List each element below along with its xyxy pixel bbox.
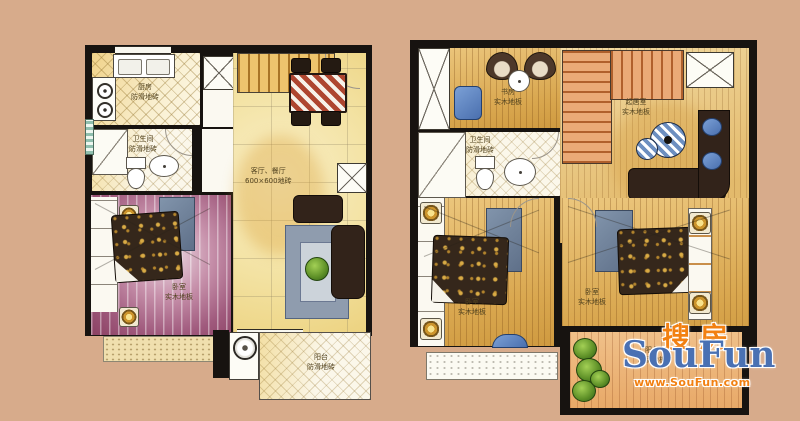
bath1-name: 卫生间 (133, 135, 154, 144)
bedroom1-label: 卧室 实木地板 (165, 283, 193, 302)
bath2-name: 卫生间 (470, 136, 491, 145)
lounge-ottoman (636, 138, 658, 160)
bath2-floor-type: 防滑地砖 (466, 146, 494, 155)
lounge-floor-type: 实木地板 (622, 108, 650, 117)
kitchen-label: 厨房 防滑地砖 (131, 83, 159, 102)
bedroom2L-bed (431, 235, 509, 306)
lounge-cushion-2 (702, 152, 722, 170)
bath1-toilet (125, 157, 145, 189)
bedroom1-name: 卧室 (172, 283, 186, 292)
soufun-watermark: 搜房 SouFun www.SouFun.com (622, 318, 782, 400)
lounge-name: 起居室 (626, 98, 647, 107)
bedroom2L-floor-type: 实木地板 (458, 308, 486, 317)
balcony2-left (426, 352, 558, 380)
living-label: 客厅、餐厅 600×600地砖 (245, 167, 292, 186)
kitchen-stove (92, 77, 116, 121)
kitchen-sink (113, 54, 175, 78)
kitchen-name: 厨房 (138, 83, 152, 92)
study-chair-blue (454, 86, 482, 120)
bedroom2R-bed (617, 227, 695, 296)
nightstand-medallion-bottom (119, 307, 139, 327)
bedroom2R-label: 卧室 实木地板 (578, 288, 606, 307)
bath2-label: 卫生间 防滑地砖 (466, 136, 494, 155)
lounge-label: 起居室 实木地板 (622, 98, 650, 117)
balcony1-label: 阳台 防滑地砖 (307, 353, 335, 372)
fridge-box (203, 56, 235, 90)
balcony-plant-1 (573, 338, 597, 360)
living-name: 客厅、餐厅 (251, 167, 286, 176)
stairs2-run-top (610, 50, 684, 100)
balcony1-name: 阳台 (314, 353, 328, 362)
living-floor-type: 600×600地砖 (245, 177, 292, 186)
balcony-plant-4 (590, 370, 610, 388)
dining-table (289, 73, 347, 113)
left-window-unit (85, 119, 94, 155)
bedroom2R-floor-type: 实木地板 (578, 298, 606, 307)
kitchen-passage (203, 90, 233, 127)
lounge-cushion-1 (702, 118, 722, 136)
dining-chair-2 (321, 58, 341, 73)
hallway (202, 129, 233, 192)
washing-machine (233, 336, 257, 360)
dining-chair-1 (291, 58, 311, 73)
study-label: 书房 实木地板 (494, 88, 522, 107)
study-wardrobe (418, 48, 450, 130)
watermark-logo-text: SouFun (622, 334, 775, 376)
kitchen-floor-type: 防滑地砖 (131, 93, 159, 102)
utility-closet (229, 332, 259, 380)
kitchen-window (115, 46, 171, 54)
decor-compass-box (337, 163, 367, 193)
bedroom1-floor-type: 实木地板 (165, 293, 193, 302)
bath2-shower (418, 132, 466, 198)
bath2-toilet (474, 156, 494, 190)
bath2-basin (504, 158, 536, 186)
bedroom1-bed (111, 211, 184, 284)
bedroom2R-medallion-bottom (689, 292, 711, 314)
floor1-plan: 厨房 防滑地砖 卫生间 防滑地砖 卧室 实木地板 (85, 45, 372, 400)
bath1-shower (92, 129, 128, 175)
bath1-label: 卫生间 防滑地砖 (129, 135, 157, 154)
stairs2-run-down (562, 50, 612, 164)
void-box (686, 52, 734, 88)
utility-wall (213, 330, 229, 378)
study-floor-type: 实木地板 (494, 98, 522, 107)
bedroom2L-label: 卧室 实木地板 (458, 298, 486, 317)
balcony1-floor-type: 防滑地砖 (307, 363, 335, 372)
sofa-right (331, 225, 365, 299)
dining-chair-4 (321, 111, 341, 126)
bedroom2L-name: 卧室 (465, 298, 479, 307)
bedroom2R-name: 卧室 (585, 288, 599, 297)
sofa-top (293, 195, 343, 223)
floorplan-image: 厨房 防滑地砖 卫生间 防滑地砖 卧室 实木地板 (0, 0, 800, 421)
bedroom2L-medallion-bottom (420, 318, 442, 340)
balcony-sand-strip (103, 336, 217, 362)
coffee-table-plant (305, 257, 329, 281)
watermark-url: www.SouFun.com (634, 376, 751, 389)
bath1-basin (149, 155, 179, 177)
dining-chair-3 (291, 111, 311, 126)
bath1-floor-type: 防滑地砖 (129, 145, 157, 154)
study-name: 书房 (501, 88, 515, 97)
bedroom2L-basin-blue (492, 334, 528, 348)
